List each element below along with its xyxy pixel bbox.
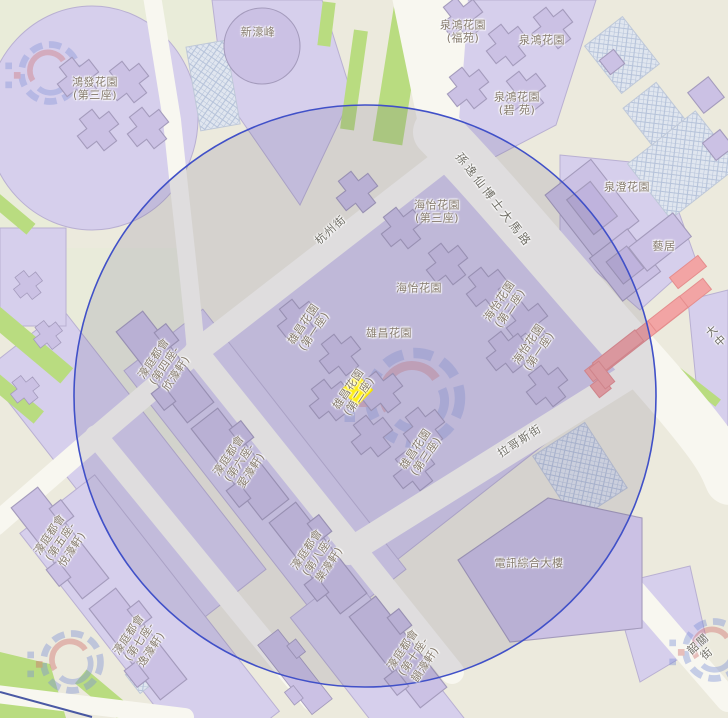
map-graphics xyxy=(0,0,728,718)
map-canvas[interactable]: 新濠峰 鴻發花園 (第三座) 泉鴻花園 (福苑) 泉鴻花園 泉鴻花園 (碧 苑)… xyxy=(0,0,728,718)
